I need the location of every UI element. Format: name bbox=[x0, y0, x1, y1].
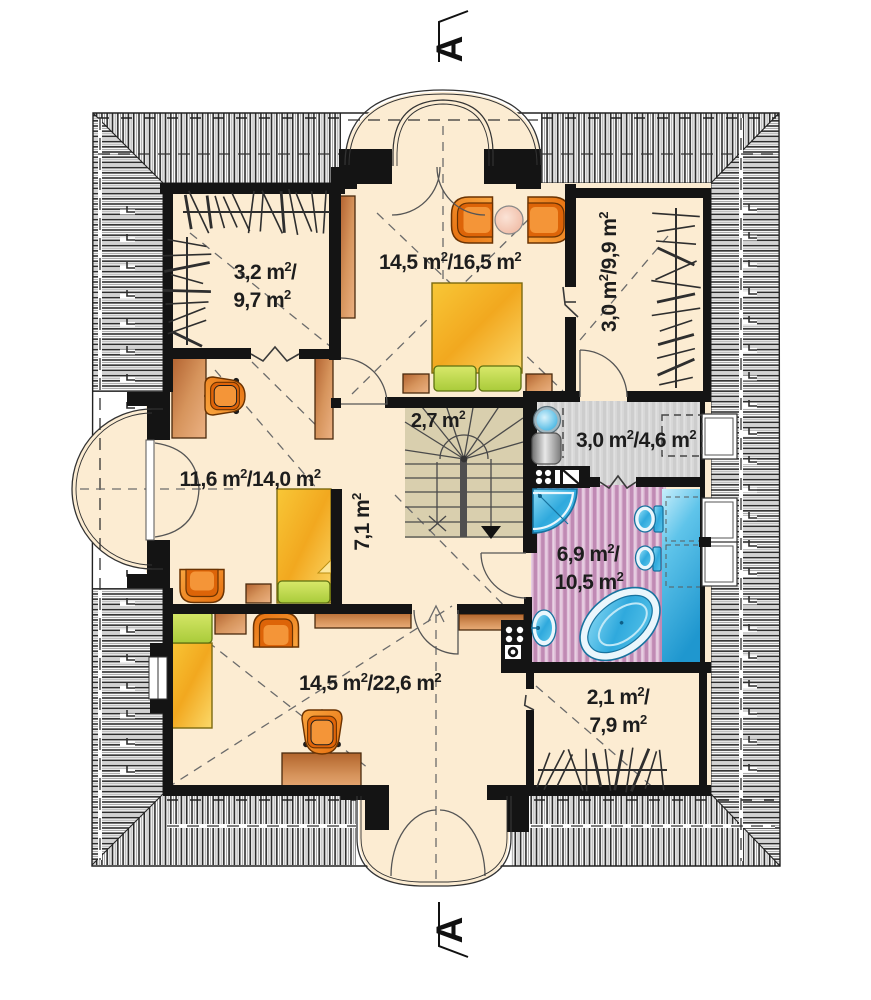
svg-text:14,5 m2​/22,6 m2​: 14,5 m2​/22,6 m2​ bbox=[299, 670, 441, 695]
svg-text:7,9 m2​: 7,9 m2​ bbox=[589, 712, 647, 737]
svg-text:3,0 m2​/4,6 m2​: 3,0 m2​/4,6 m2​ bbox=[576, 427, 696, 452]
svg-text:11,6 m2​/14,0 m2​: 11,6 m2​/14,0 m2​ bbox=[180, 466, 321, 491]
svg-text:7,1 m2​: 7,1 m2​ bbox=[349, 493, 374, 551]
svg-text:2,7 m2​: 2,7 m2​ bbox=[411, 408, 466, 432]
svg-text:9,7 m2​: 9,7 m2​ bbox=[233, 287, 291, 312]
svg-text:A: A bbox=[429, 36, 470, 63]
svg-text:14,5 m2​/16,5 m2​: 14,5 m2​/16,5 m2​ bbox=[379, 249, 521, 274]
svg-text:3,0 m2​/9,9 m2​: 3,0 m2​/9,9 m2​ bbox=[596, 212, 621, 332]
svg-text:10,5 m2​: 10,5 m2​ bbox=[555, 569, 624, 594]
svg-text:A: A bbox=[429, 917, 470, 944]
